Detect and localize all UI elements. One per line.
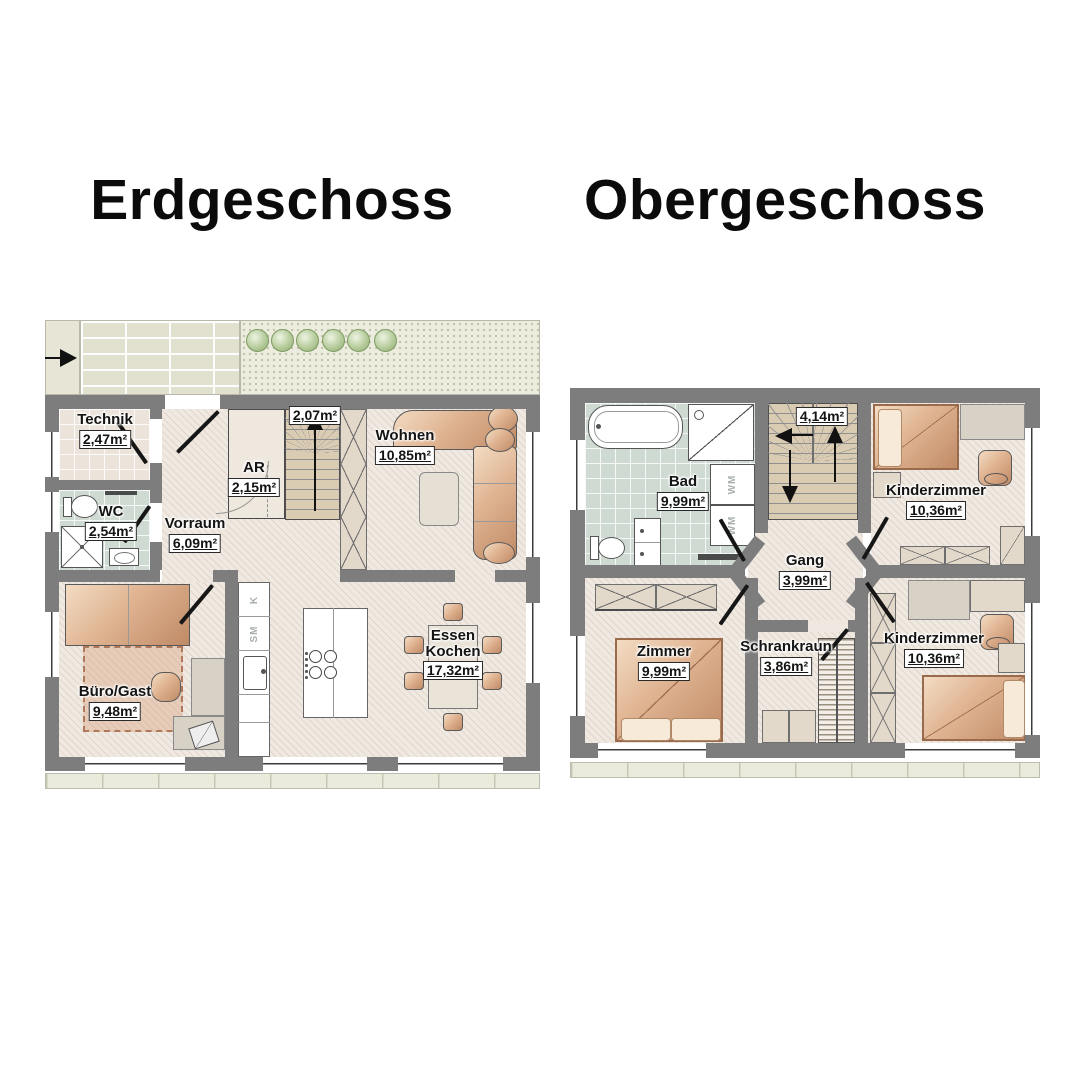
fridge-label: K — [240, 584, 268, 616]
room-area: 10,36m² — [904, 649, 964, 668]
window — [526, 432, 540, 557]
room-name: Vorraum — [165, 516, 226, 532]
stair-arrow-icon — [775, 428, 792, 444]
wall — [495, 570, 526, 582]
room-area: 2,47m² — [79, 430, 131, 449]
room-label-stiege: 2,07m² — [289, 404, 341, 425]
room-name: WC — [98, 504, 123, 520]
window — [45, 612, 59, 677]
room-area: 9,99m² — [638, 662, 690, 681]
wardrobe-cell — [341, 464, 366, 516]
guest-bed — [65, 584, 190, 646]
window — [263, 757, 367, 771]
desk — [191, 658, 225, 716]
room-name: Zimmer — [637, 644, 691, 660]
wall — [858, 403, 871, 533]
room-label-essen: Essen Kochen 17,32m² — [420, 628, 486, 680]
plan-erdgeschoss: K SM — [45, 320, 540, 790]
wardrobe-cell — [656, 584, 717, 610]
room-name: Wohnen — [376, 428, 435, 444]
window — [1025, 428, 1040, 536]
paving-strip — [570, 762, 1040, 778]
shelf — [960, 404, 1025, 440]
floorplan-canvas: Erdgeschoss Obergeschoss — [0, 0, 1080, 1080]
room-area: 10,36m² — [906, 501, 966, 520]
desk-chair — [978, 450, 1012, 486]
washing-machine-label: WM — [716, 462, 749, 507]
title-obergeschoss: Obergeschoss — [580, 167, 990, 233]
bathtub-faucet — [596, 424, 601, 429]
bed — [873, 404, 959, 470]
bush-icon — [322, 329, 345, 352]
title-erdgeschoss: Erdgeschoss — [87, 167, 457, 233]
room-area: 10,85m² — [375, 446, 435, 465]
room-area: 2,07m² — [289, 406, 341, 425]
entrance-arrow-icon — [60, 349, 77, 367]
dresser — [789, 710, 816, 743]
toilet — [598, 537, 625, 559]
room-label-wohnen: Wohnen 10,85m² — [375, 428, 435, 465]
wall — [59, 480, 150, 490]
corner-shelf — [1000, 526, 1025, 565]
room-name: Essen Kochen — [420, 628, 486, 659]
wall — [758, 620, 808, 632]
nightstand — [998, 643, 1025, 673]
wall — [59, 570, 160, 582]
window — [398, 757, 503, 771]
cooktop-burner — [324, 666, 337, 679]
stair-arrow-stem — [834, 442, 836, 482]
stair-up-arrow-icon — [827, 426, 843, 443]
wardrobe-cell — [341, 517, 366, 569]
stair-arrow-stem — [791, 434, 813, 436]
bathtub — [588, 405, 683, 449]
window — [570, 440, 585, 510]
room-label-kinderzimmer-unten: Kinderzimmer 10,36m² — [884, 631, 984, 668]
room-label-gang: Gang 3,99m² — [779, 553, 831, 590]
window — [905, 743, 1015, 758]
room-name: AR — [243, 460, 265, 476]
room-name: Technik — [77, 412, 133, 428]
room-area: 2,54m² — [85, 522, 137, 541]
dining-chair — [443, 713, 463, 731]
stair-arrow-stem — [314, 429, 316, 511]
room-label-schrankraum: Schrankraun 3,86m² — [740, 639, 832, 676]
wardrobe-cell — [870, 693, 896, 743]
room-label-kinderzimmer-oben: Kinderzimmer 10,36m² — [886, 483, 986, 520]
kitchen-island — [303, 608, 368, 718]
room-label-stiege: 4,14m² — [796, 405, 848, 426]
washbasin — [109, 548, 139, 566]
shower-drain — [80, 545, 84, 549]
room-area: 4,14m² — [796, 407, 848, 426]
wall — [150, 409, 162, 419]
window — [598, 743, 706, 758]
room-area: 17,32m² — [423, 661, 483, 680]
bush-icon — [374, 329, 397, 352]
shelf — [970, 580, 1025, 612]
room-area: 6,09m² — [169, 534, 221, 553]
room-label-vorraum: Vorraum 6,09m² — [165, 516, 226, 553]
dining-chair — [443, 603, 463, 621]
room-area: 3,86m² — [760, 657, 812, 676]
coffee-table — [419, 472, 459, 526]
wall — [45, 395, 165, 409]
wardrobe-cell — [945, 546, 990, 565]
room-label-bad: Bad 9,99m² — [657, 474, 709, 511]
room-name: Bad — [669, 474, 697, 490]
wardrobe-cell — [595, 584, 656, 610]
sofa-cushion — [483, 542, 515, 564]
room-label-zimmer: Zimmer 9,99m² — [637, 644, 691, 681]
entrance-arrow-line — [45, 357, 61, 359]
room-label-ar: AR 2,15m² — [228, 460, 280, 497]
shower — [688, 404, 754, 461]
room-label-buero: Büro/Gast 9,48m² — [79, 684, 152, 721]
room-area: 9,48m² — [89, 702, 141, 721]
bed — [922, 675, 1026, 741]
wardrobe-cell — [341, 410, 366, 464]
office-chair — [151, 672, 181, 702]
bush-icon — [246, 329, 269, 352]
dishwasher-label: SM — [240, 618, 268, 650]
sink-faucet — [261, 669, 266, 674]
cooktop-burner — [309, 666, 322, 679]
paving-strip — [45, 773, 540, 789]
plan-obergeschoss: WM WM — [570, 388, 1040, 780]
terrace-bricks — [80, 320, 240, 395]
wall — [225, 582, 238, 757]
wall — [585, 565, 745, 578]
bush-icon — [347, 329, 370, 352]
room-area: 2,15m² — [228, 478, 280, 497]
room-area: 9,99m² — [657, 492, 709, 511]
room-label-wc: WC 2,54m² — [85, 504, 137, 541]
window — [45, 432, 59, 477]
room-label-technik: Technik 2,47m² — [77, 412, 133, 449]
window — [526, 603, 540, 683]
wall — [220, 395, 540, 409]
stair-arrow-stem — [789, 450, 791, 488]
wardrobe-cell — [900, 546, 945, 565]
sofa-cushion — [485, 428, 515, 452]
cooktop-burner — [324, 650, 337, 663]
cooktop-burner — [309, 650, 322, 663]
wall — [570, 388, 1040, 403]
room-name: Kinderzimmer — [884, 631, 984, 647]
wall — [213, 570, 238, 582]
wall — [150, 463, 162, 503]
towel-rail — [105, 491, 137, 495]
wall — [866, 565, 1025, 578]
wall — [340, 570, 455, 582]
room-name: Kinderzimmer — [886, 483, 986, 499]
bush-icon — [296, 329, 319, 352]
room-name: Gang — [786, 553, 824, 569]
window — [85, 757, 185, 771]
room-name: Schrankraun — [740, 639, 832, 655]
stair-down-arrow-icon — [782, 486, 798, 503]
wardrobe-front — [595, 609, 717, 611]
wall — [855, 578, 868, 743]
bush-icon — [271, 329, 294, 352]
bathroom-vanity — [634, 518, 661, 566]
room-area: 3,99m² — [779, 571, 831, 590]
desk — [908, 580, 970, 620]
wall — [848, 620, 860, 632]
built-in-wardrobe — [340, 409, 367, 570]
window — [570, 636, 585, 716]
door-opening — [808, 620, 848, 632]
window — [1025, 603, 1040, 735]
wall — [755, 403, 768, 533]
wall — [150, 542, 162, 570]
dresser — [762, 710, 789, 743]
room-name: Büro/Gast — [79, 684, 152, 700]
window — [45, 492, 59, 532]
